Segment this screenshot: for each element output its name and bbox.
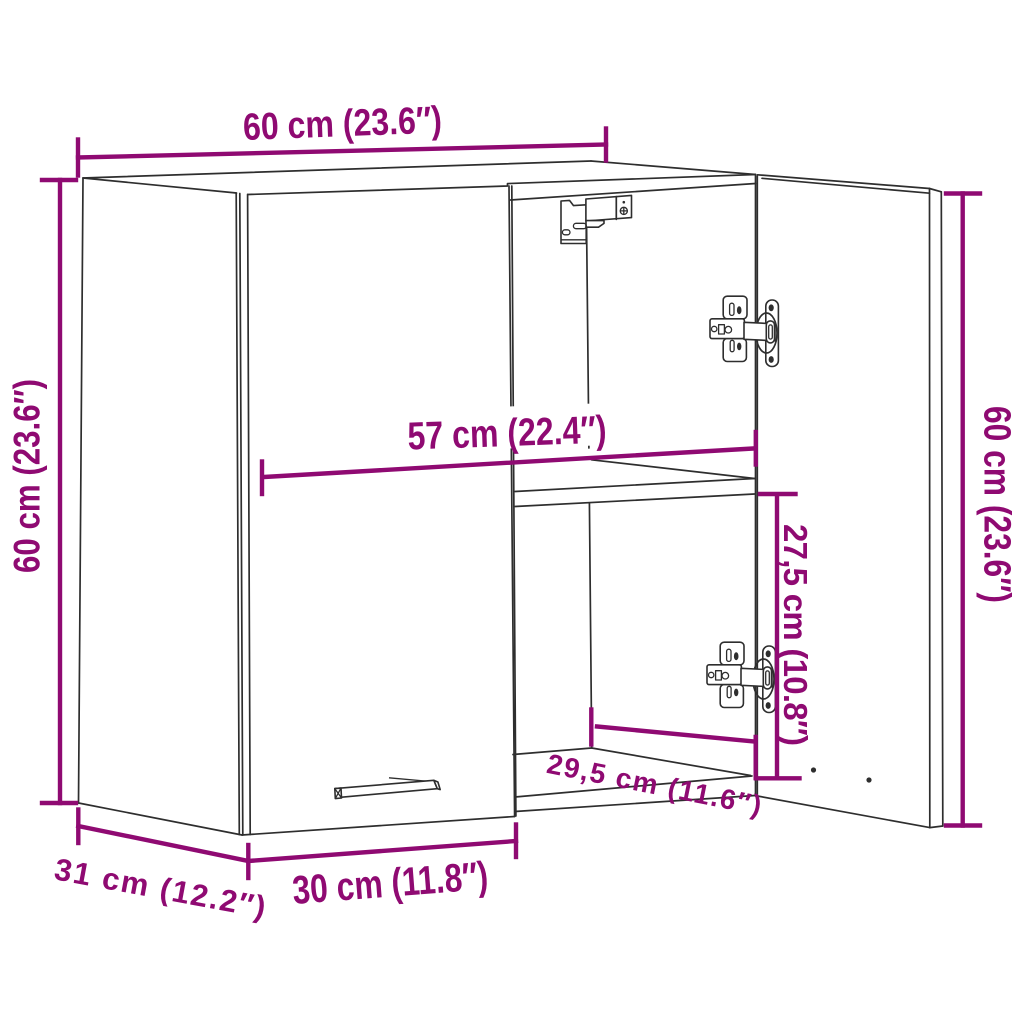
svg-text:60 cm (23.6″): 60 cm (23.6″) bbox=[242, 99, 442, 149]
svg-text:60 cm (23.6″): 60 cm (23.6″) bbox=[976, 406, 1018, 603]
svg-text:57 cm (22.4″): 57 cm (22.4″) bbox=[407, 409, 607, 459]
svg-text:27,5 cm (10.8″): 27,5 cm (10.8″) bbox=[777, 524, 814, 746]
svg-text:60 cm (23.6″): 60 cm (23.6″) bbox=[7, 379, 48, 573]
